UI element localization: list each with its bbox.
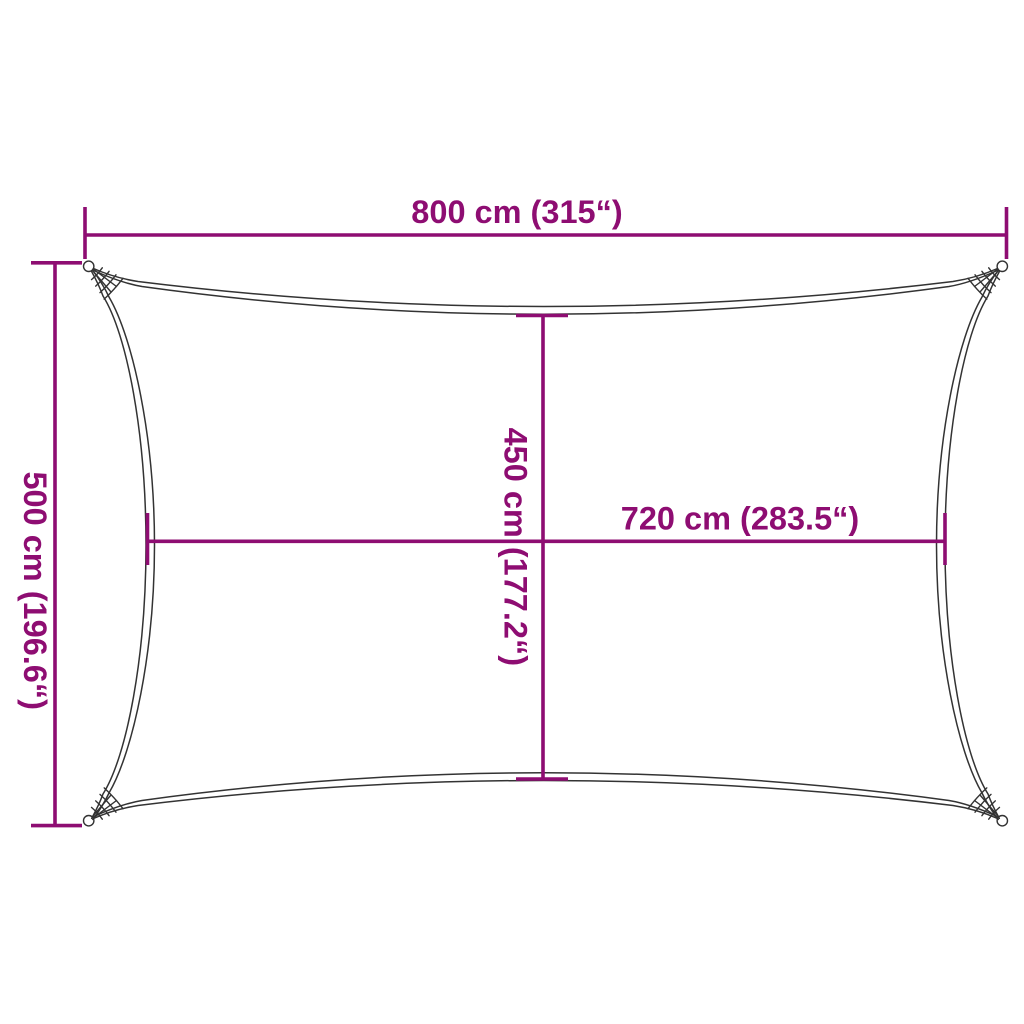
svg-text:450 cm (177.2“): 450 cm (177.2“) bbox=[497, 428, 533, 666]
svg-text:500 cm (196.6“): 500 cm (196.6“) bbox=[17, 471, 53, 709]
svg-text:800 cm (315“): 800 cm (315“) bbox=[411, 194, 622, 230]
svg-text:720 cm (283.5“): 720 cm (283.5“) bbox=[621, 501, 859, 537]
